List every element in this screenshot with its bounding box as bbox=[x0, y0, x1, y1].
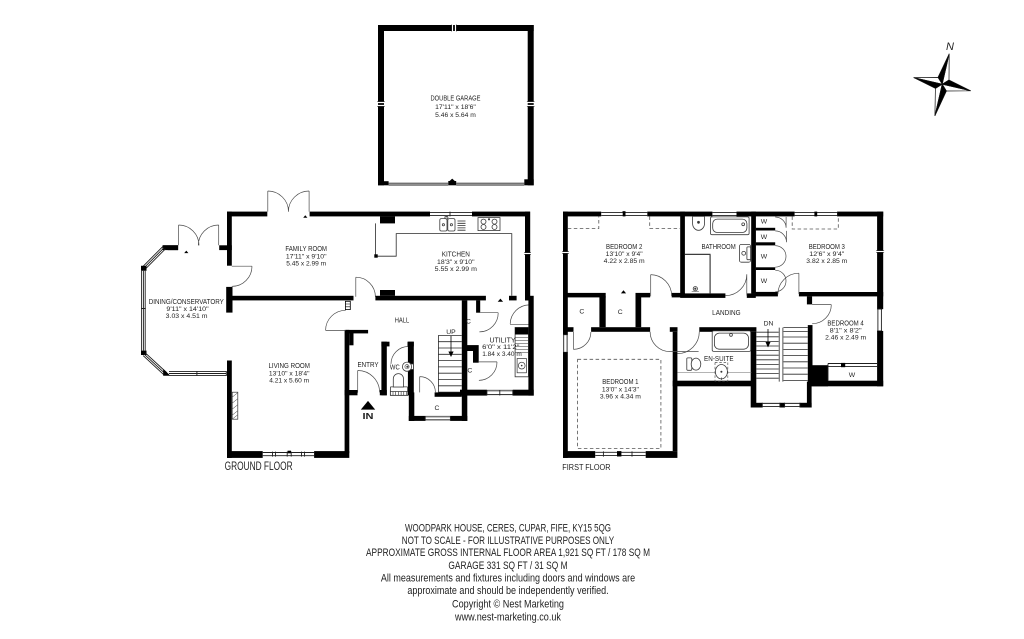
svg-text:WOODPARK HOUSE, CERES, CUPAR,: WOODPARK HOUSE, CERES, CUPAR, FIFE, KY15… bbox=[405, 522, 611, 534]
svg-text:C: C bbox=[467, 367, 472, 374]
svg-text:DINING/CONSERVATORY: DINING/CONSERVATORY bbox=[149, 299, 224, 306]
svg-text:9'11" x 14'10": 9'11" x 14'10" bbox=[166, 306, 209, 313]
svg-text:BEDROOM 3: BEDROOM 3 bbox=[809, 244, 845, 251]
svg-text:W: W bbox=[761, 253, 768, 260]
svg-text:C: C bbox=[435, 405, 440, 412]
svg-text:DN: DN bbox=[764, 320, 774, 327]
svg-text:FAMILY ROOM: FAMILY ROOM bbox=[285, 246, 327, 253]
svg-text:WC: WC bbox=[390, 364, 400, 371]
svg-text:BEDROOM 4: BEDROOM 4 bbox=[827, 320, 863, 327]
svg-text:3.03 x 4.51 m: 3.03 x 4.51 m bbox=[166, 313, 208, 320]
svg-text:UP: UP bbox=[446, 329, 456, 336]
svg-text:5.46 x 5.64 m: 5.46 x 5.64 m bbox=[435, 112, 476, 119]
svg-text:3.96 x 4.34 m: 3.96 x 4.34 m bbox=[600, 393, 642, 400]
svg-text:Copyright © Nest Marketing: Copyright © Nest Marketing bbox=[452, 599, 564, 611]
svg-text:DOUBLE GARAGE: DOUBLE GARAGE bbox=[431, 96, 481, 103]
svg-text:HALL: HALL bbox=[395, 318, 410, 325]
svg-text:BATHROOM: BATHROOM bbox=[702, 244, 736, 251]
svg-text:2.46 x 2.49 m: 2.46 x 2.49 m bbox=[825, 335, 867, 342]
svg-text:W: W bbox=[761, 234, 768, 241]
svg-text:BEDROOM 1: BEDROOM 1 bbox=[602, 379, 638, 386]
svg-text:5.55 x 2.99 m: 5.55 x 2.99 m bbox=[435, 266, 478, 273]
svg-text:17'11" x 18'6": 17'11" x 18'6" bbox=[435, 104, 476, 111]
svg-text:approximate and should be inde: approximate and should be independently … bbox=[407, 585, 608, 597]
svg-text:18'3" x 9'10": 18'3" x 9'10" bbox=[437, 259, 475, 266]
svg-text:APPROXIMATE GROSS INTERNAL FLO: APPROXIMATE GROSS INTERNAL FLOOR AREA 1,… bbox=[366, 547, 650, 559]
svg-text:4.22 x 2.85 m: 4.22 x 2.85 m bbox=[604, 258, 646, 265]
svg-text:KITCHEN: KITCHEN bbox=[442, 252, 470, 259]
svg-text:W: W bbox=[761, 218, 768, 225]
svg-text:EN-SUITE: EN-SUITE bbox=[704, 356, 734, 363]
svg-text:ENTRY: ENTRY bbox=[357, 362, 378, 369]
svg-text:1.84 x 3.40 m: 1.84 x 3.40 m bbox=[482, 351, 522, 358]
svg-text:BEDROOM 2: BEDROOM 2 bbox=[606, 244, 642, 251]
svg-text:W: W bbox=[849, 372, 856, 379]
svg-text:IN: IN bbox=[363, 412, 374, 421]
svg-text:NOT TO SCALE - FOR ILLUSTRATIV: NOT TO SCALE - FOR ILLUSTRATIVE PURPOSES… bbox=[402, 535, 615, 547]
svg-text:www.nest-marketing.co.uk: www.nest-marketing.co.uk bbox=[454, 611, 561, 623]
svg-text:N: N bbox=[946, 41, 954, 53]
svg-text:4.21 x 5.60 m: 4.21 x 5.60 m bbox=[269, 377, 310, 384]
svg-text:GARAGE 331 SQ FT / 31 SQ M: GARAGE 331 SQ FT / 31 SQ M bbox=[448, 560, 567, 572]
svg-text:12'6" x 9'4": 12'6" x 9'4" bbox=[809, 251, 845, 258]
svg-text:5.45 x 2.99 m: 5.45 x 2.99 m bbox=[286, 260, 327, 267]
svg-text:6'0" x 11'2": 6'0" x 11'2" bbox=[482, 344, 520, 351]
svg-text:C: C bbox=[618, 309, 623, 316]
svg-text:C: C bbox=[466, 318, 471, 325]
svg-text:LANDING: LANDING bbox=[712, 310, 741, 317]
svg-text:13'10" x 18'4": 13'10" x 18'4" bbox=[269, 370, 310, 377]
svg-text:LIVING ROOM: LIVING ROOM bbox=[268, 363, 310, 370]
svg-text:17'11" x 9'10": 17'11" x 9'10" bbox=[286, 253, 327, 260]
svg-text:13'10" x 9'4": 13'10" x 9'4" bbox=[606, 251, 644, 258]
svg-text:GROUND FLOOR: GROUND FLOOR bbox=[225, 461, 293, 473]
svg-text:All measurements and fixtures: All measurements and fixtures including … bbox=[381, 573, 635, 585]
svg-text:8'1" x 8'2": 8'1" x 8'2" bbox=[830, 328, 863, 335]
svg-text:W: W bbox=[761, 278, 768, 285]
svg-text:13'0" x 14'3": 13'0" x 14'3" bbox=[602, 386, 640, 393]
svg-text:FIRST FLOOR: FIRST FLOOR bbox=[562, 462, 610, 472]
svg-text:3.82 x 2.85 m: 3.82 x 2.85 m bbox=[806, 258, 848, 265]
svg-text:C: C bbox=[579, 309, 584, 316]
